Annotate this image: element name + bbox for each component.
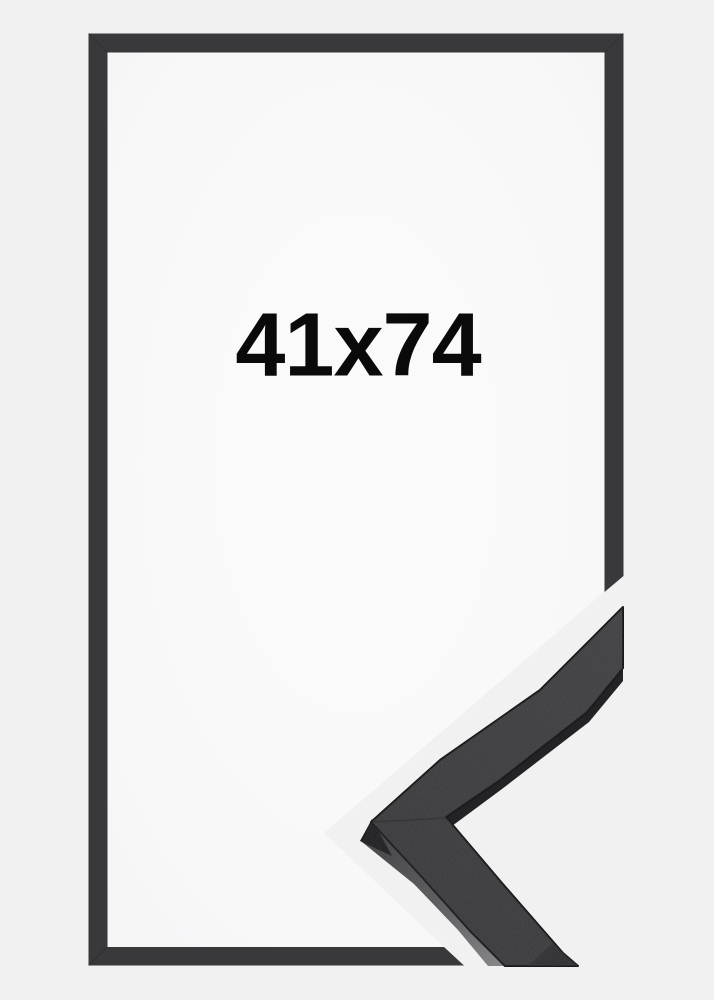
frame-size-label: 41x74 <box>235 294 480 397</box>
frame-graphic <box>0 0 714 1000</box>
frame-product-image: 41x74 <box>0 0 714 1000</box>
frame-outline-bottom-bar <box>89 947 465 966</box>
frame-outline-left-bar <box>89 34 108 966</box>
frame-outline-right-bar <box>605 34 624 593</box>
frame-outline-top-bar <box>89 34 624 53</box>
